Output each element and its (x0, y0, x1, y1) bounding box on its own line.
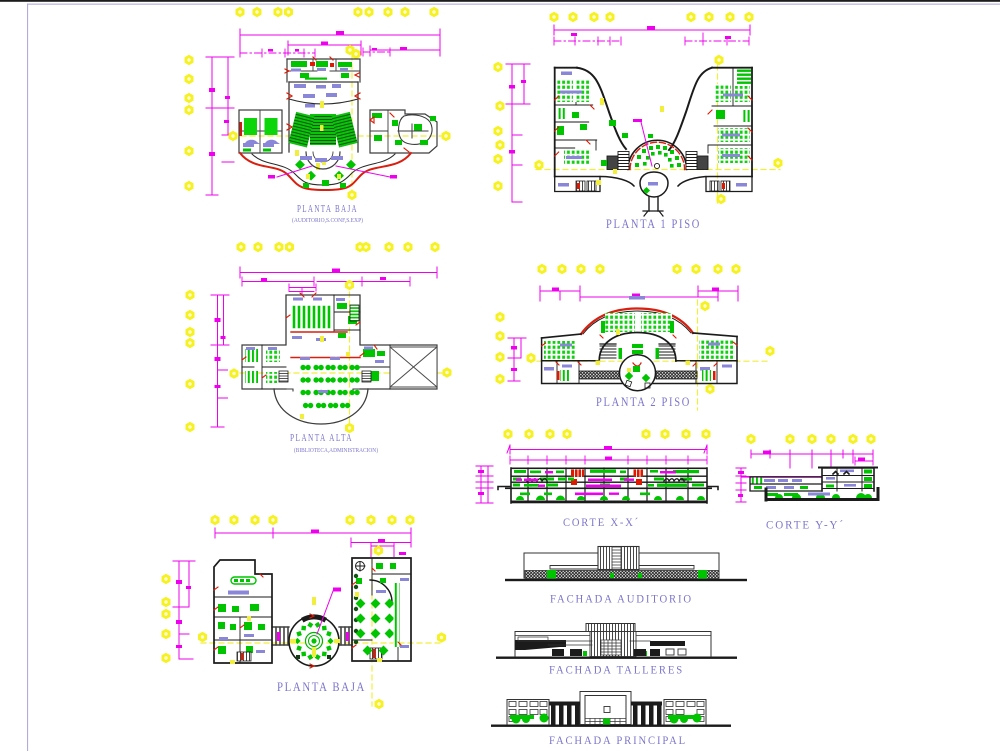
svg-text:PLANTA 1 PISO: PLANTA 1 PISO (606, 217, 701, 231)
svg-text:(AUDITORIO,S.CONF,S.EXP): (AUDITORIO,S.CONF,S.EXP) (292, 217, 363, 224)
svg-text:CORTE X-X´: CORTE X-X´ (563, 517, 640, 529)
svg-text:FACHADA AUDITORIO: FACHADA AUDITORIO (550, 594, 693, 606)
svg-text:CORTE Y-Y´: CORTE Y-Y´ (766, 520, 845, 532)
svg-text:PLANTA BAJA: PLANTA BAJA (277, 679, 366, 694)
svg-text:PLANTA BAJA: PLANTA BAJA (297, 204, 358, 215)
svg-text:(BIBLIOTECA,ADMINISTRACION): (BIBLIOTECA,ADMINISTRACION) (294, 447, 378, 454)
svg-text:FACHADA PRINCIPAL: FACHADA PRINCIPAL (549, 735, 687, 747)
svg-text:FACHADA TALLERES: FACHADA TALLERES (549, 665, 684, 677)
svg-text:PLANTA 2 PISO: PLANTA 2 PISO (596, 395, 691, 409)
svg-text:PLANTA ALTA: PLANTA ALTA (290, 433, 353, 444)
